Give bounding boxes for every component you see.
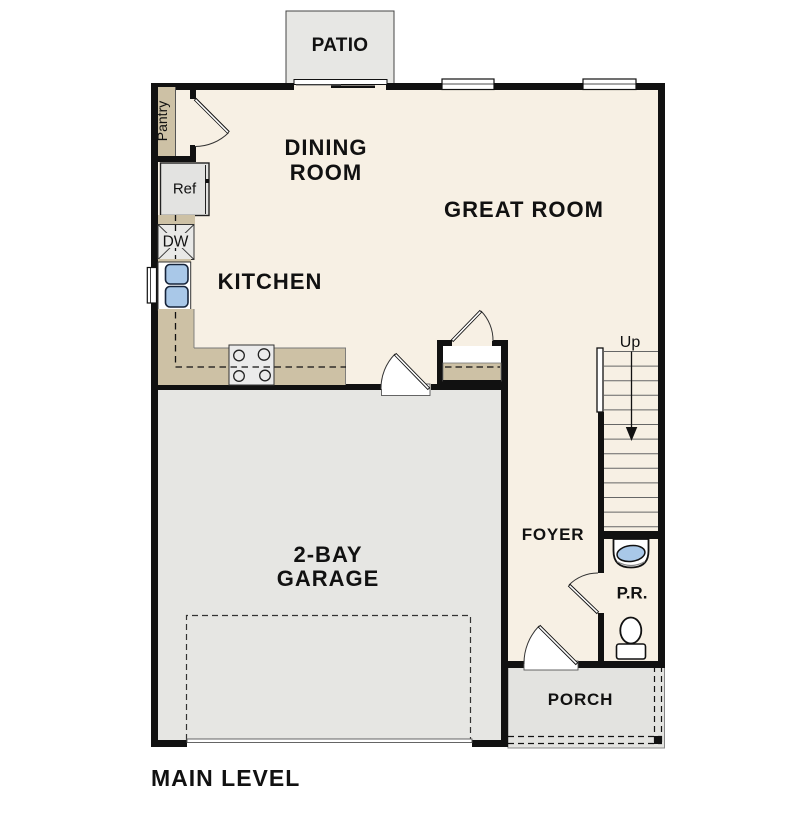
svg-text:DINING: DINING: [285, 135, 368, 160]
svg-text:2-BAY: 2-BAY: [294, 542, 363, 567]
svg-text:Up: Up: [620, 334, 641, 351]
svg-text:PATIO: PATIO: [312, 35, 369, 56]
svg-text:ROOM: ROOM: [290, 160, 362, 185]
svg-text:PORCH: PORCH: [548, 690, 613, 709]
svg-text:Pantry: Pantry: [154, 101, 170, 141]
svg-text:KITCHEN: KITCHEN: [218, 269, 323, 294]
svg-text:Ref: Ref: [173, 181, 197, 198]
svg-text:FOYER: FOYER: [522, 525, 585, 544]
svg-text:GREAT ROOM: GREAT ROOM: [444, 197, 604, 222]
svg-text:GARAGE: GARAGE: [277, 566, 380, 591]
svg-text:MAIN LEVEL: MAIN LEVEL: [151, 765, 300, 791]
svg-text:DW: DW: [163, 234, 189, 251]
svg-text:P.R.: P.R.: [617, 584, 648, 603]
